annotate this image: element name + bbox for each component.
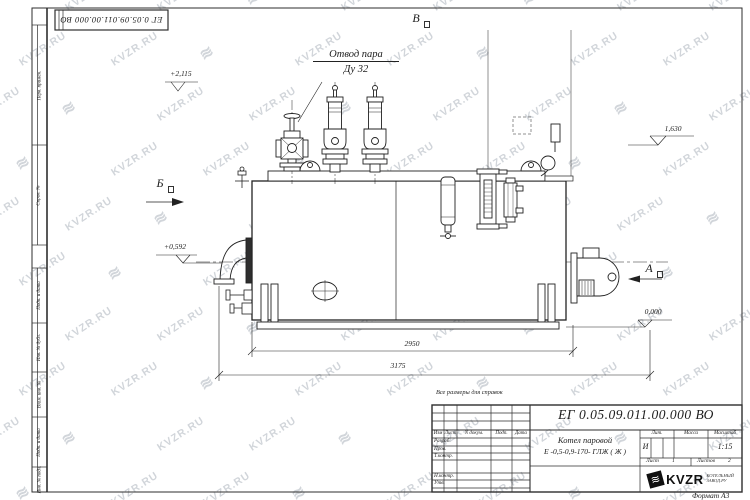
boiler-drawing xyxy=(146,30,694,381)
margin-cell: Подп. и дата xyxy=(32,268,47,323)
view-ref-mark xyxy=(424,21,430,28)
lit-value: И xyxy=(640,443,651,451)
callout-steam-outlet: Отвод пара xyxy=(313,49,399,62)
level-sensor xyxy=(541,124,560,176)
margin-cell: Перв. примен. xyxy=(32,25,47,145)
corner-stamp-text: ЕГ 0.05.09.011.00.000 ВО xyxy=(60,15,162,25)
company-subtext: КОТЕЛЬНЫЙ ЗАВОД.РУ xyxy=(706,474,733,484)
burner xyxy=(571,248,619,303)
row-prov: Пров. xyxy=(434,447,446,452)
format-label: Формат А3 xyxy=(692,492,729,500)
level-label: 1,630 xyxy=(652,125,694,133)
drawing-sheet: ≋KVZR.RUKVZR.RU≋KVZR.RUKVZR.RU≋KVZR.RUKV… xyxy=(0,0,750,500)
view-ref-mark xyxy=(657,271,663,278)
sheet-label: Лист xyxy=(646,459,659,465)
margin-cell: Инв. № дубл. xyxy=(32,323,47,372)
col-data: Дата xyxy=(512,431,530,436)
view-label-b: Б xyxy=(152,177,168,190)
corner-stamp: ЕГ 0.05.09.011.00.000 ВО xyxy=(55,10,168,30)
lit-label: Лит. xyxy=(640,431,674,436)
dimension-label-2950: 2950 xyxy=(392,340,432,348)
col-ndoc: N докум. xyxy=(457,431,491,436)
margin-cell: Подп. и дата xyxy=(32,417,47,467)
safety-valve xyxy=(322,82,348,184)
callout-leader xyxy=(298,82,322,122)
callout-dn32: Ду 32 xyxy=(313,64,399,75)
sheet-value: 1 xyxy=(672,459,675,465)
margin-label: Взам. инв. № xyxy=(37,381,42,409)
product-name-line2: Е -0,5-0,9-170- ГЛЖ ( Ж ) xyxy=(532,448,638,456)
company-logo-text: KVZR xyxy=(666,472,703,487)
margin-cell: Инв. № подл. xyxy=(32,467,47,492)
row-razrab: Разраб. xyxy=(434,439,451,444)
kvzr-logo-icon: ≋ xyxy=(646,470,664,488)
col-podp: Подп. xyxy=(491,431,512,436)
scale-label: Масштаб xyxy=(708,431,742,436)
margin-label: Инв. № дубл. xyxy=(37,334,42,361)
margin-label: Инв. № подл. xyxy=(37,466,42,494)
sample-tap xyxy=(235,167,249,188)
margin-cell: Справ. № xyxy=(32,145,47,245)
col-izm: Изм xyxy=(432,431,444,436)
level-label: +2,115 xyxy=(162,70,200,78)
margin-cell: Взам. инв. № xyxy=(32,372,47,417)
sheets-value: 2 xyxy=(728,459,731,465)
col-list: Лист xyxy=(444,431,457,436)
margin-label: Подп. и дата xyxy=(37,428,42,457)
product-name-line1: Котел паровой xyxy=(532,436,638,445)
level-label: 0,000 xyxy=(634,308,672,316)
margin-label: Справ. № xyxy=(37,185,42,205)
level-label: +0,592 xyxy=(154,243,196,251)
view-ref-mark xyxy=(168,186,174,193)
row-tkontr: Т.контр. xyxy=(434,454,453,459)
scale-value: 1:15 xyxy=(708,443,742,451)
safety-valve xyxy=(362,82,388,184)
row-utv: Утв. xyxy=(434,481,445,486)
boiler-shell xyxy=(252,181,566,320)
margin-label: Перв. примен. xyxy=(37,70,42,100)
reference-note: Все размеры для справок xyxy=(436,390,503,397)
titleblock-designation: ЕГ 0.05.09.011.00.000 ВО xyxy=(532,408,740,422)
drain-fittings xyxy=(226,290,252,314)
margin-label: Подп. и дата xyxy=(37,281,42,310)
view-label-a: А xyxy=(641,262,657,275)
company-cell: ≋ KVZR КОТЕЛЬНЫЙ ЗАВОД.РУ xyxy=(642,468,740,490)
dimension-label-3175: 3175 xyxy=(378,362,418,370)
sheets-label: Листов xyxy=(697,459,715,465)
mass-label: Масса xyxy=(674,431,708,436)
company-sub-line2: ЗАВОД.РУ xyxy=(706,479,733,484)
view-label-v: В xyxy=(408,12,424,25)
flue-elbow xyxy=(214,238,252,284)
row-nkontr: Н.контр. xyxy=(434,474,454,479)
